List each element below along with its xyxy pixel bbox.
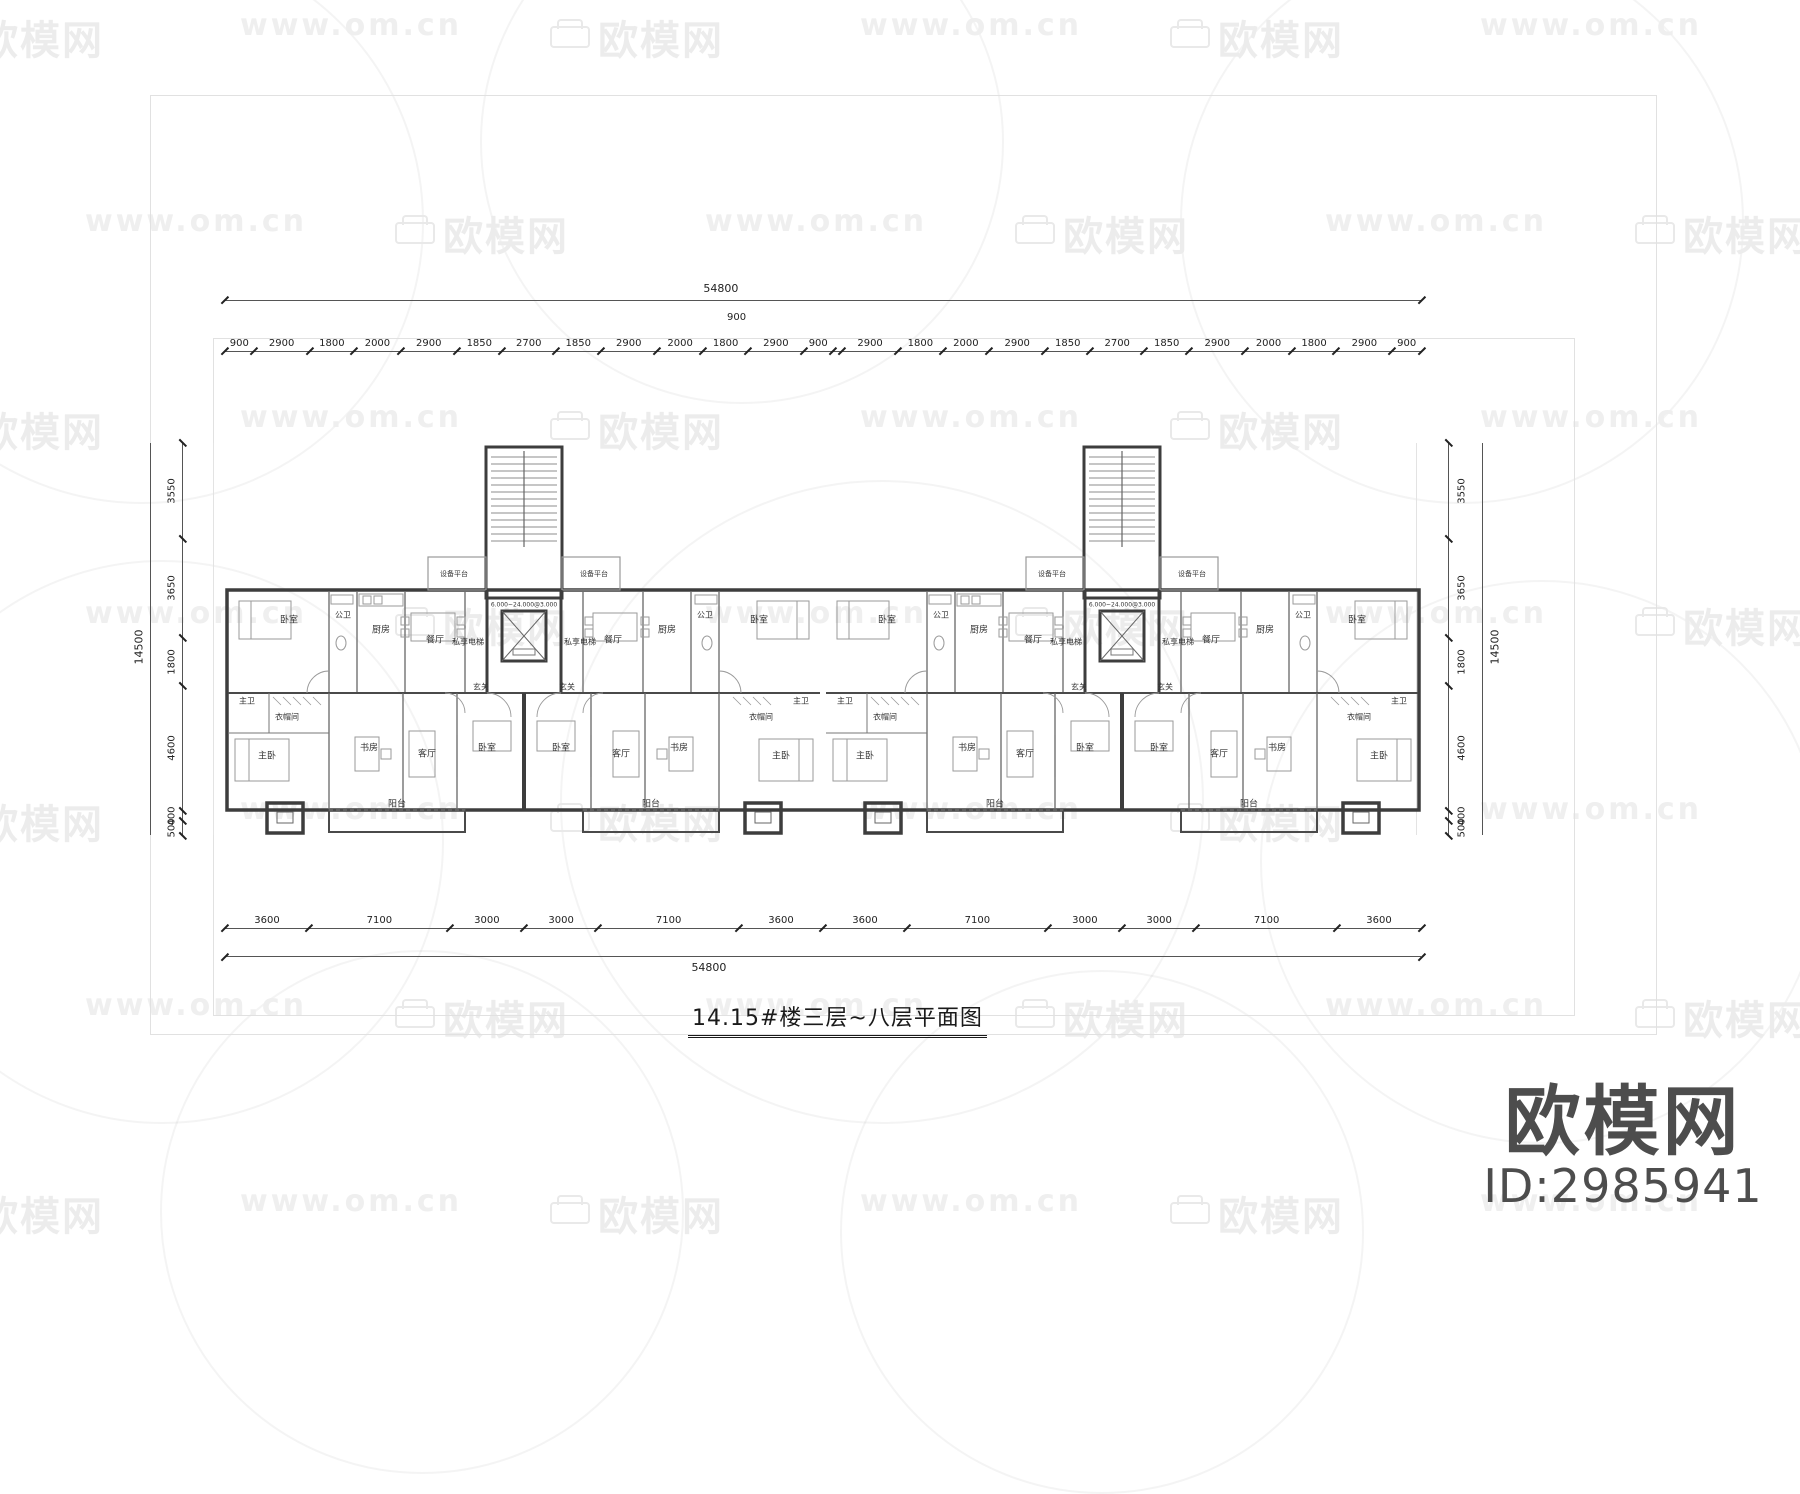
- watermark-text: 欧模网: [1170, 8, 1344, 66]
- dimension-segment: 2700: [502, 338, 556, 351]
- watermark-text: 欧模网: [0, 400, 104, 458]
- watermark-text: 欧模网: [1170, 1184, 1344, 1242]
- ac-platform: [745, 803, 781, 833]
- watermark-text: 欧模网: [0, 1184, 104, 1242]
- site-logo: 欧模网 ID:2985941: [1458, 1082, 1788, 1210]
- ac-platform: [1343, 803, 1379, 833]
- watermark-text: www.om.cn: [240, 1184, 462, 1219]
- core-wall: [1085, 590, 1159, 693]
- dimension-segment: 3600: [225, 915, 309, 928]
- watermark-text: www.om.cn: [240, 8, 462, 43]
- dimension-segment: 7100: [907, 915, 1048, 928]
- dimension-segment: 1850: [457, 338, 502, 351]
- dimension-segment: 2000: [354, 338, 401, 351]
- dimension-segment: 2000: [657, 338, 704, 351]
- dimension-segment: 1800: [1292, 338, 1336, 351]
- watermark-text: 欧模网: [1635, 596, 1800, 654]
- top-total-value: 54800: [703, 282, 738, 295]
- site-logo-id: ID:2985941: [1458, 1162, 1788, 1210]
- ac-platform: [267, 803, 303, 833]
- dimension-segment: 900: [225, 338, 254, 351]
- outer-wall: [227, 590, 1419, 810]
- dimension-segment: 7100: [598, 915, 739, 928]
- dimension-segment: 900: [804, 338, 833, 351]
- sofa-icon: [1170, 1202, 1210, 1224]
- building-wing: [228, 447, 820, 833]
- bottom-dimension-segments: 3600710030003000710036003600710030003000…: [225, 908, 1421, 929]
- equipment-platform: [1026, 557, 1084, 590]
- closet-walls: [228, 693, 329, 733]
- balcony: [583, 810, 719, 832]
- closet-walls: [826, 693, 927, 733]
- elevator-cross: [502, 611, 546, 661]
- top-center-dimension: 900: [727, 312, 746, 323]
- watermark-text: 欧模网: [1635, 204, 1800, 262]
- partition-walls-top: [927, 592, 1317, 693]
- watermark-text: 欧模网: [1635, 988, 1800, 1046]
- dimension-segment: 2000: [943, 338, 990, 351]
- balcony: [1181, 810, 1317, 832]
- dimension-segment: 3600: [739, 915, 823, 928]
- dimension-segment: 3000: [1048, 915, 1122, 928]
- sofa-icon: [550, 1202, 590, 1224]
- sofa-icon: [550, 26, 590, 48]
- dimension-segment: 2900: [254, 338, 310, 351]
- dimension-segment: 3600: [823, 915, 907, 928]
- dimension-segment: 1850: [1144, 338, 1189, 351]
- partition-walls-top: [329, 592, 719, 693]
- balcony: [329, 810, 465, 832]
- watermark-text: 欧模网: [0, 8, 104, 66]
- top-dimension-segments: 9002900180020002900185027001850290020001…: [225, 331, 1421, 352]
- ac-unit: [277, 812, 293, 823]
- right-dimension-segments: 3550365018004600400500: [1448, 443, 1449, 835]
- site-logo-brand: 欧模网: [1458, 1082, 1788, 1162]
- watermark-text: www.om.cn: [1480, 8, 1702, 43]
- left-dimension-segments: 3550365018004600400500: [182, 443, 183, 835]
- floor-plan: [225, 443, 1421, 835]
- dimension-segment: 2000: [1245, 338, 1292, 351]
- core-wall: [487, 590, 561, 693]
- dimension-segment: 3000: [524, 915, 598, 928]
- dimension-segment: 900: [1392, 338, 1421, 351]
- sofa-icon: [1170, 26, 1210, 48]
- dimension-segment: 1800: [703, 338, 747, 351]
- dimension-segment: 3000: [450, 915, 524, 928]
- left-total-value: 14500: [133, 629, 146, 664]
- ac-unit: [755, 812, 771, 823]
- dimension-segment: 2700: [1090, 338, 1144, 351]
- equipment-platform: [562, 557, 620, 590]
- dimension-segment: 1800: [310, 338, 354, 351]
- ac-unit: [875, 812, 891, 823]
- dimension-segment: 2900: [842, 338, 898, 351]
- elevator-door: [513, 649, 535, 655]
- left-extension-line: [213, 443, 214, 835]
- dimension-segment: 1850: [556, 338, 601, 351]
- dimension-segment: 3000: [1122, 915, 1196, 928]
- bottom-total-dimension: 54800: [225, 956, 1421, 981]
- floor-plan-drawing: [225, 443, 1421, 835]
- ac-platform: [865, 803, 901, 833]
- dimension-segment: 2900: [1336, 338, 1392, 351]
- dimension-segment: 3600: [1337, 915, 1421, 928]
- watermark-text: 欧模网: [550, 8, 724, 66]
- dimension-segment: 7100: [1196, 915, 1337, 928]
- right-total-value: 14500: [1489, 629, 1502, 664]
- equipment-platform: [428, 557, 486, 590]
- watermark-text: www.om.cn: [860, 8, 1082, 43]
- dimension-segment: 2900: [601, 338, 657, 351]
- watermark-text: www.om.cn: [860, 1184, 1082, 1219]
- balcony: [927, 810, 1063, 832]
- dimension-segment: 2900: [1189, 338, 1245, 351]
- right-total-dimension: 14500: [1482, 443, 1483, 835]
- watermark-text: 欧模网: [550, 1184, 724, 1242]
- ac-unit: [1353, 812, 1369, 823]
- dimension-segment: 7100: [309, 915, 450, 928]
- dimension-segment: 2900: [401, 338, 457, 351]
- top-total-dimension: 54800: [225, 272, 1421, 301]
- dimension-segment: 1800: [898, 338, 942, 351]
- sheet-title: 14.15#楼三层~八层平面图: [688, 1000, 987, 1038]
- dimension-segment: 1850: [1045, 338, 1090, 351]
- dimension-segment: 2900: [989, 338, 1045, 351]
- building-wing: [826, 447, 1418, 833]
- left-total-dimension: 14500: [150, 443, 151, 835]
- equipment-platform: [1160, 557, 1218, 590]
- elevator-door: [1111, 649, 1133, 655]
- bottom-total-value: 54800: [691, 961, 726, 974]
- dimension-segment: 2900: [748, 338, 804, 351]
- elevator-cross: [1100, 611, 1144, 661]
- watermark-text: 欧模网: [0, 792, 104, 850]
